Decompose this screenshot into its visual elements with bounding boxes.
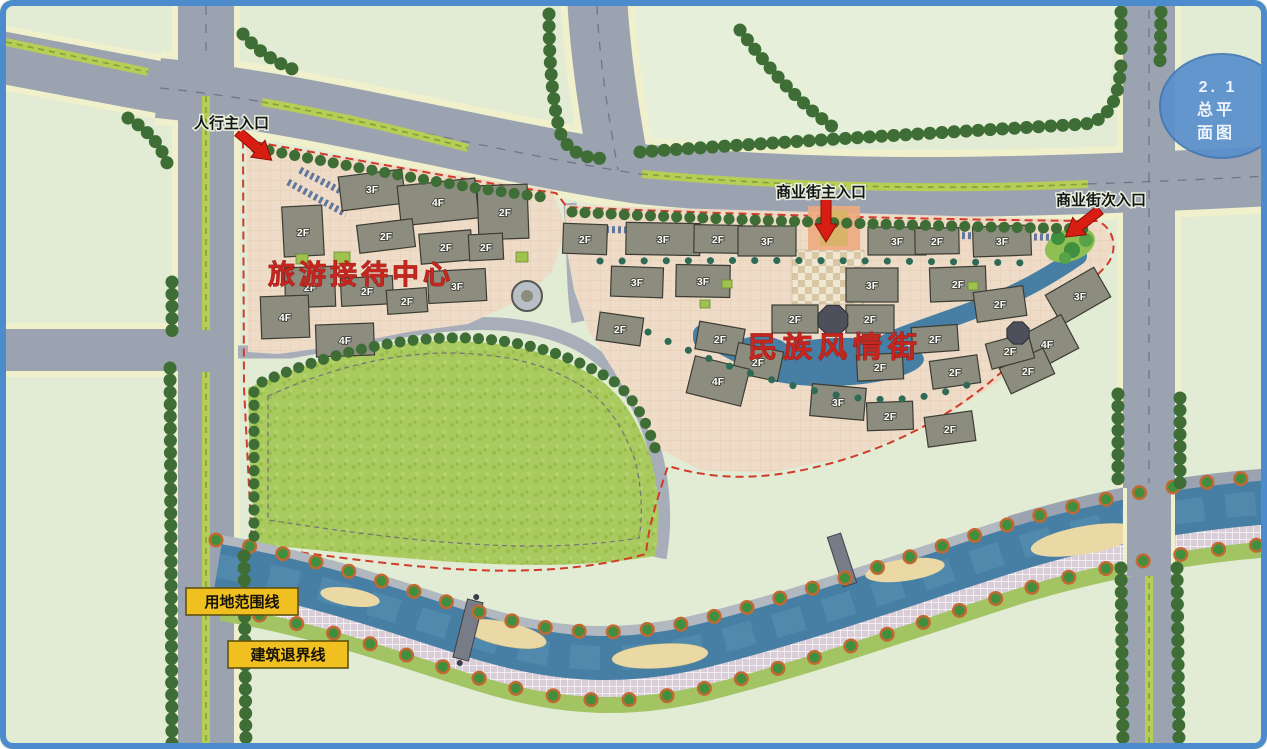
floor-label: 2F	[994, 299, 1007, 311]
floor-label: 2F	[1022, 366, 1035, 378]
floor-label: 3F	[1074, 291, 1087, 303]
floor-label: 2F	[401, 296, 414, 308]
badge-title-2: 面图	[1197, 124, 1235, 142]
floor-label: 4F	[1041, 339, 1054, 351]
pavilion-octagon-small	[1007, 322, 1029, 344]
floor-label: 3F	[631, 277, 644, 289]
badge-number: 2. 1	[1199, 79, 1238, 96]
pedestrian-entrance-label: 人行主入口	[194, 114, 269, 132]
land-use-boundary-label: 用地范围线	[204, 593, 279, 611]
floor-label: 2F	[931, 236, 944, 248]
floor-label: 2F	[944, 424, 957, 436]
floor-label: 2F	[480, 242, 493, 254]
pavilion-octagon	[818, 305, 848, 335]
legend-building-setback: 建筑退界线	[228, 641, 348, 668]
floor-label: 2F	[440, 242, 453, 254]
floor-label: 2F	[949, 367, 962, 379]
floor-label: 2F	[297, 227, 310, 239]
floor-label: 2F	[714, 334, 727, 346]
floor-label: 3F	[891, 236, 904, 248]
floor-label: 2F	[929, 334, 942, 346]
floor-label: 2F	[1004, 346, 1017, 358]
floor-label: 2F	[884, 411, 897, 423]
floor-label: 4F	[339, 335, 352, 347]
floor-label: 3F	[866, 280, 879, 292]
legend-land-use-boundary: 用地范围线	[186, 588, 298, 615]
site-plan-frame: 3F4F2F2F2F2F2F2F2F3F2F4F4F2F3F2F3F3F2F3F…	[0, 0, 1267, 749]
commercial-main-entrance-label: 商业街主入口	[776, 183, 866, 201]
commercial-secondary-entrance-label: 商业街次入口	[1056, 191, 1146, 209]
floor-label: 3F	[697, 276, 710, 288]
floor-label: 2F	[952, 279, 965, 291]
master-plan-drawing: 3F4F2F2F2F2F2F2F2F3F2F4F4F2F3F2F3F3F2F3F…	[0, 0, 1267, 749]
floor-label: 3F	[832, 397, 845, 409]
floor-label: 4F	[712, 376, 725, 388]
floor-label: 4F	[279, 312, 292, 324]
floor-label: 2F	[789, 314, 802, 326]
building-setback-label: 建筑退界线	[250, 646, 325, 664]
floor-label: 3F	[761, 236, 774, 248]
floor-label: 3F	[366, 184, 379, 196]
floor-label: 2F	[380, 231, 393, 243]
floor-label: 2F	[864, 314, 877, 326]
floor-label: 4F	[432, 197, 445, 209]
floor-label: 3F	[657, 234, 670, 246]
floor-label: 3F	[996, 236, 1009, 248]
folk-street-title: 民族风情街	[748, 330, 923, 364]
floor-label: 2F	[579, 234, 592, 246]
badge-title-1: 总平	[1197, 100, 1235, 119]
floor-label: 2F	[499, 207, 512, 219]
floor-label: 2F	[614, 324, 627, 336]
floor-label: 2F	[712, 234, 725, 246]
tourist-center-title: 旅游接待中心	[268, 259, 454, 290]
